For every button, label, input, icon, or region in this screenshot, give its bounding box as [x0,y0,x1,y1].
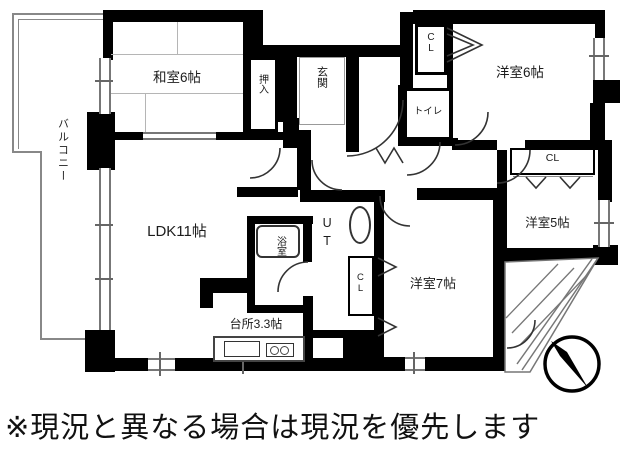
stove-burner [280,346,289,355]
wall-segment [87,112,115,170]
room-label-balcony-left: バルコニー [56,118,68,258]
wall-segment [500,248,598,262]
window-symbol [99,58,111,114]
room-label-washitsu: 和室6帖 [118,71,236,85]
wall-segment [343,338,377,358]
tatami-line [177,22,178,54]
wall-segment [593,80,620,103]
room-label-kitchen: 台所3.3帖 [208,318,304,331]
wall-segment [425,357,505,371]
wall-segment [310,330,377,338]
room-label-cl-top: CL [425,32,436,70]
window-symbol [405,357,425,371]
wall-segment [598,148,612,202]
wall-segment [103,132,145,140]
room-label-cl-right: CL [510,153,595,164]
window-symbol [593,38,605,80]
room-label-yoshitsu7: 洋室7帖 [378,277,488,291]
hanger-rod-line [513,176,593,177]
wall-segment [103,13,113,60]
wall-segment [237,187,298,197]
wall-segment [400,12,413,90]
wall-segment [213,278,253,293]
wall-segment [297,130,311,190]
disclaimer-text: ※現況と異なる場合は現況を優先します [5,404,637,446]
window-tick [95,278,113,280]
kitchen-sink [224,341,260,357]
wall-segment [103,10,255,22]
wall-segment [493,188,507,360]
tatami-line [111,93,243,94]
room-label-toilet: トイレ [406,107,450,117]
wall-segment [303,357,405,371]
tatami-line [111,54,243,55]
window-symbol [143,132,216,140]
wall-segment [247,216,255,313]
wall-segment [85,358,148,371]
window-symbol [99,168,111,330]
window-tick [95,80,113,82]
wall-segment [300,190,385,202]
stove-burner [270,346,279,355]
window-tick [413,352,415,374]
room-label-cl-center: CL [355,272,365,308]
wall-segment [216,132,283,140]
window-tick [159,352,161,376]
wall-segment [175,358,215,371]
tatami-line [145,93,146,132]
room-label-yoshitsu6: 洋室6帖 [455,66,585,80]
wall-segment [200,278,213,308]
washbasin [349,206,371,244]
wall-segment [413,10,605,24]
floor-plan: バルコニー 和室6帖 押入 玄関 CL 洋室6帖 トイレ CL 洋室5帖 LDK… [0,0,640,460]
room-label-bath: 浴室 [274,236,285,282]
window-tick [589,55,609,57]
wall-segment [417,188,500,200]
window-tick [95,224,113,226]
room-label-yoshitsu5: 洋室5帖 [495,217,600,230]
wall-segment [255,45,405,57]
wall-segment [247,305,311,313]
wall-segment [346,45,359,152]
wall-segment [452,140,497,150]
room-label-genkan: 玄関 [315,66,327,114]
wall-segment [303,216,312,262]
room-label-oshiire: 押入 [256,74,267,118]
room-label-ldk: LDK11帖 [112,224,242,240]
window-symbol [148,358,175,371]
room-label-ut: UT [320,216,333,272]
service-niche [313,338,343,358]
